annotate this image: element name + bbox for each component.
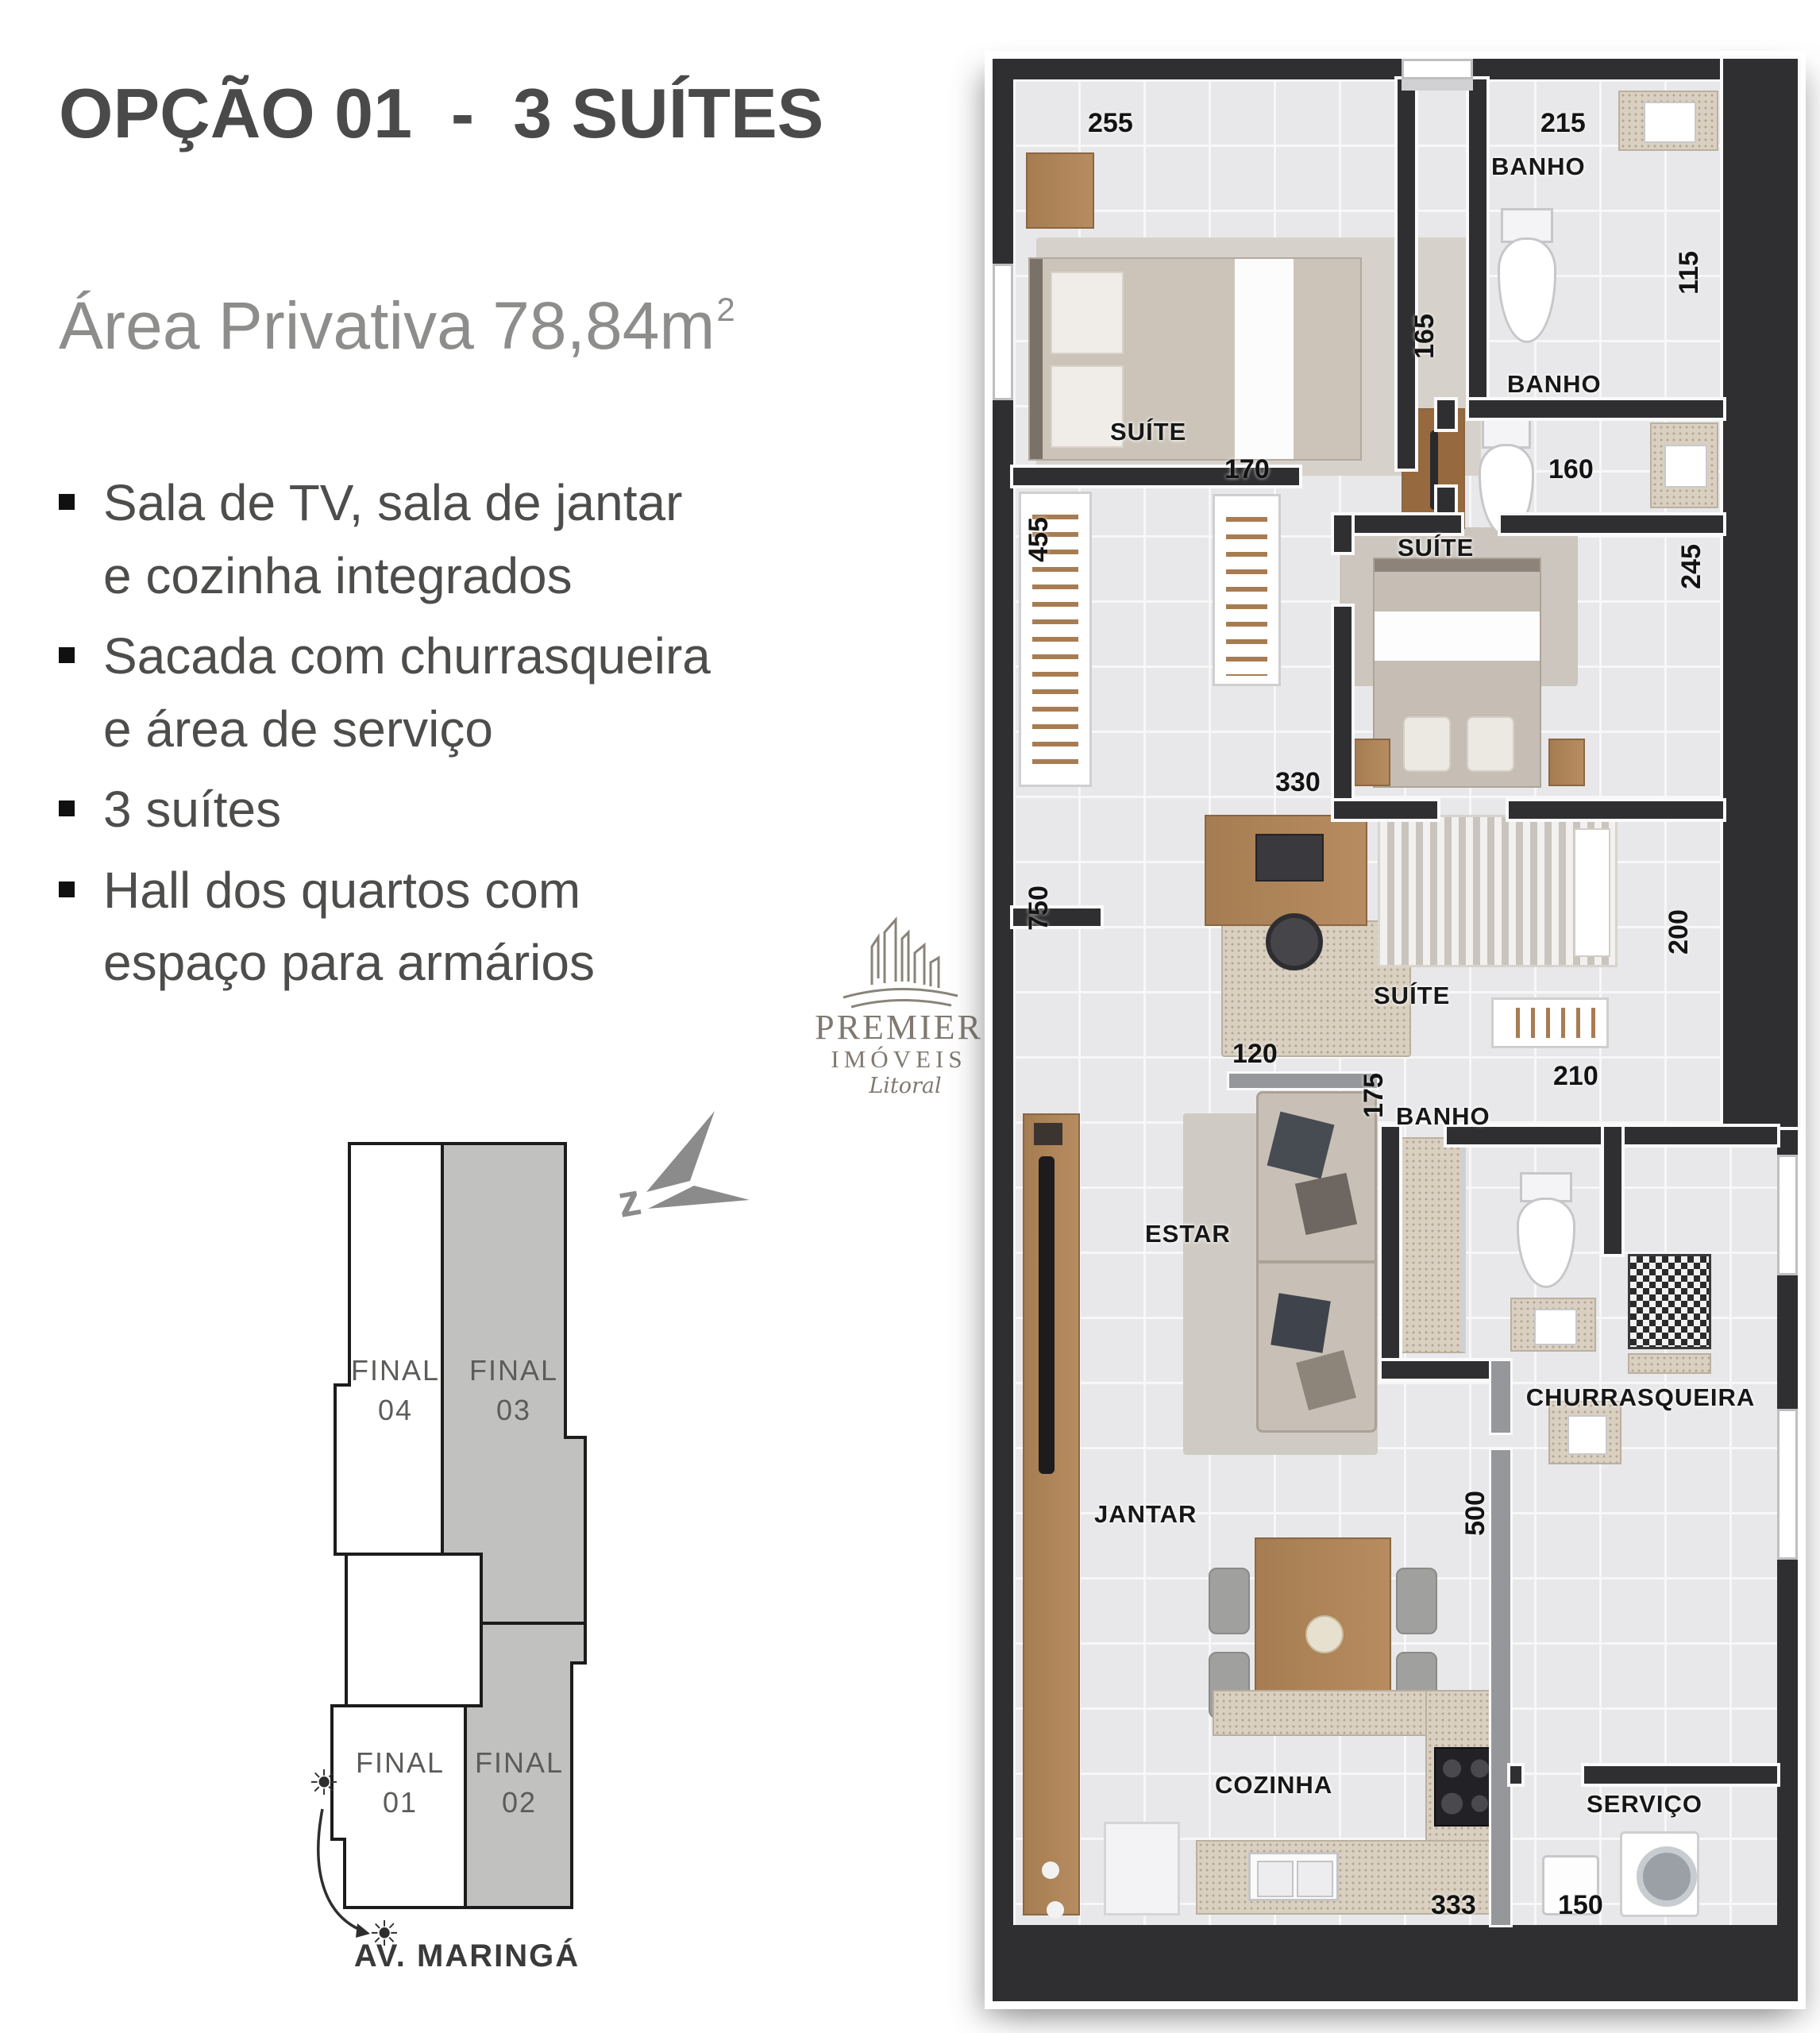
pillow: [1403, 716, 1451, 772]
logo-tagline: Litoral: [868, 1074, 941, 1098]
bbq-grill: [1628, 1254, 1711, 1349]
unit-label: 03: [496, 1394, 531, 1426]
balcony-door: [1777, 1155, 1798, 1275]
washer-drum: [1637, 1846, 1697, 1907]
decor-object: [1047, 1901, 1064, 1919]
dimension-170: 170: [1224, 454, 1270, 485]
window: [1777, 1409, 1798, 1560]
list-item: Hall dos quartos com espaço para armário…: [59, 854, 837, 1000]
bullet-square-icon: [59, 800, 75, 816]
dimension-333: 333: [1431, 1890, 1476, 1921]
feature-text: Sala de TV, sala de jantar e cozinha int…: [103, 467, 682, 612]
balcony-divider: [1491, 1450, 1510, 1925]
dimension-330: 330: [1275, 767, 1321, 798]
decor-object: [1042, 1861, 1059, 1879]
laptop: [1255, 834, 1324, 881]
dimension-215: 215: [1540, 108, 1586, 139]
entry-door-opening: [1402, 59, 1473, 79]
throw-pillow: [1271, 1293, 1331, 1353]
dimension-175: 175: [1359, 1073, 1390, 1118]
kitchen-sink: [1248, 1852, 1339, 1901]
bathroom-vanity: [1650, 422, 1718, 508]
keyplan-diagram: FINAL 04 FINAL 03 FINAL 01 FINAL 02 ☀ ☀ …: [311, 1137, 623, 1971]
clothes-rack: [1491, 997, 1609, 1048]
window: [993, 264, 1013, 400]
room-label-banho-1: BANHO: [1491, 152, 1586, 181]
balcony-divider: [1491, 1361, 1510, 1433]
throw-pillow: [1295, 1173, 1357, 1235]
room-label-banho-2: BANHO: [1507, 370, 1602, 399]
refrigerator: [1104, 1822, 1180, 1915]
unit-label: 02: [502, 1786, 537, 1819]
room-label-churrasqueira: CHURRASQUEIRA: [1521, 1383, 1760, 1412]
room-label-cozinha: COZINHA: [1215, 1771, 1332, 1800]
wall: [1382, 1361, 1509, 1379]
page-title: OPÇÃO 01 - 3 SUÍTES: [59, 73, 823, 154]
flyer: OPÇÃO 01 - 3 SUÍTES Área Privativa 78,84…: [0, 0, 1820, 2033]
dimension-150: 150: [1558, 1890, 1603, 1921]
wall: [1723, 59, 1798, 1127]
sun-icon: ☀: [311, 1764, 340, 1803]
tv-screen: [1039, 1156, 1055, 1474]
tv-sideboard: [1023, 1113, 1080, 1915]
feature-text: Hall dos quartos com espaço para armário…: [103, 854, 595, 1000]
unit-label: 04: [378, 1394, 413, 1426]
wall: [1469, 79, 1486, 400]
sink: [1567, 1415, 1607, 1455]
dimension-750: 750: [1024, 885, 1055, 931]
dimension-210: 210: [1553, 1061, 1598, 1092]
unit-label: FINAL: [475, 1746, 564, 1779]
feature-text: 3 suítes: [103, 773, 281, 847]
unit-label: FINAL: [356, 1746, 445, 1779]
wardrobe-closet: [1213, 494, 1281, 686]
cooktop-stove: [1434, 1747, 1498, 1827]
sink: [1664, 445, 1707, 488]
compass-letter: z: [614, 1174, 645, 1223]
desk: [1205, 815, 1367, 926]
dining-chair: [1209, 1568, 1250, 1634]
room-label-jantar: JANTAR: [1094, 1500, 1197, 1529]
room-label-servico: SERVIÇO: [1569, 1790, 1720, 1819]
wall: [1469, 400, 1723, 418]
wall: [1437, 400, 1455, 429]
sink-basin: [1297, 1861, 1333, 1897]
dimension-455: 455: [1024, 517, 1055, 562]
wall: [1398, 79, 1415, 469]
wall: [993, 1925, 1798, 2001]
feature-text: Sacada com churrasqueira e área de servi…: [103, 620, 711, 766]
dimension-255: 255: [1088, 108, 1133, 139]
wall: [1334, 515, 1352, 552]
bed-runner: [1235, 259, 1294, 459]
logo-wordmark-secondary: IMÓVEIS: [831, 1045, 966, 1073]
keyplan-outline: [332, 1144, 585, 1908]
wall: [1509, 801, 1723, 819]
wall: [1334, 607, 1352, 801]
sofa-cushion-seam: [1259, 1260, 1375, 1263]
unit-label: FINAL: [351, 1354, 440, 1387]
dining-chair: [1396, 1568, 1437, 1634]
pillow: [1051, 272, 1124, 354]
wall: [1510, 1766, 1521, 1784]
centerpiece: [1305, 1615, 1344, 1653]
wall: [1334, 515, 1461, 533]
toilet: [1517, 1172, 1575, 1288]
north-arrow-icon: z: [613, 1108, 760, 1223]
list-item: Sala de TV, sala de jantar e cozinha int…: [59, 467, 837, 612]
core-connector-shape: [346, 1554, 481, 1706]
bullet-square-icon: [59, 881, 75, 897]
bullet-square-icon: [59, 494, 75, 510]
pillow: [1467, 716, 1514, 772]
decor-object: [1034, 1123, 1062, 1145]
double-bed: [1373, 557, 1541, 788]
buildings-icon: [843, 920, 958, 1007]
wall: [1382, 1127, 1399, 1361]
nightstand: [1026, 152, 1094, 229]
dimension-165: 165: [1409, 314, 1440, 359]
dimension-115: 115: [1674, 251, 1705, 295]
premier-imoveis-logo: PREMIER IMÓVEIS Litoral: [796, 915, 1002, 1105]
private-area-text: Área Privativa 78,84m2: [59, 287, 734, 365]
single-bed: [1378, 815, 1618, 967]
wall: [1584, 1766, 1777, 1784]
grill-counter: [1628, 1353, 1711, 1374]
wall: [1334, 801, 1437, 819]
list-item: Sacada com churrasqueira e área de servi…: [59, 620, 837, 766]
bullet-square-icon: [59, 647, 75, 663]
unit-label: FINAL: [469, 1354, 558, 1387]
washing-machine: [1620, 1831, 1699, 1917]
wall: [1604, 1127, 1621, 1254]
office-chair: [1266, 913, 1323, 970]
half-wall: [1229, 1074, 1377, 1088]
dimension-200: 200: [1664, 909, 1695, 955]
room-label-suite-2: SUÍTE: [1398, 534, 1474, 562]
sink: [1534, 1309, 1577, 1345]
wall: [1501, 515, 1723, 533]
unit-label: 01: [383, 1786, 418, 1819]
door-leaf: [1402, 79, 1473, 91]
wall: [993, 59, 1798, 79]
nightstand: [1548, 739, 1585, 786]
shower: [1390, 1137, 1466, 1353]
logo-wordmark: PREMIER: [815, 1008, 983, 1047]
feature-list: Sala de TV, sala de jantar e cozinha int…: [59, 467, 837, 1008]
sink-basin: [1257, 1861, 1294, 1897]
nightstand: [1354, 739, 1390, 786]
double-bed: [1028, 257, 1362, 461]
list-item: 3 suítes: [59, 773, 837, 847]
toilet: [1498, 208, 1556, 343]
sink: [1644, 102, 1696, 143]
room-label-estar: ESTAR: [1145, 1220, 1231, 1248]
dimension-500: 500: [1460, 1491, 1491, 1536]
private-area-value: Área Privativa 78,84m: [59, 288, 715, 363]
headboard: [1030, 259, 1043, 459]
street-label: AV. MARINGÁ: [354, 1938, 580, 1971]
room-label-suite-1: SUÍTE: [1110, 418, 1186, 446]
sofa: [1256, 1091, 1377, 1433]
floorplan: SUÍTE BANHO BANHO SUÍTE SUÍTE BANHO ESTA…: [993, 59, 1798, 2001]
room-label-banho-3: BANHO: [1396, 1102, 1490, 1131]
throw-pillow: [1267, 1112, 1335, 1179]
square-meter-superscript: 2: [716, 291, 735, 328]
bed-sheet: [1375, 611, 1540, 661]
dimension-245: 245: [1676, 544, 1707, 589]
bathroom-vanity: [1618, 91, 1718, 151]
unit-final-04-shape: [335, 1144, 442, 1554]
throw-pillow: [1296, 1350, 1356, 1410]
pillow: [1574, 828, 1610, 957]
room-label-suite-3: SUÍTE: [1374, 982, 1450, 1010]
dimension-160: 160: [1548, 454, 1594, 485]
dimension-120: 120: [1232, 1039, 1278, 1070]
bathroom-vanity: [1510, 1298, 1596, 1352]
